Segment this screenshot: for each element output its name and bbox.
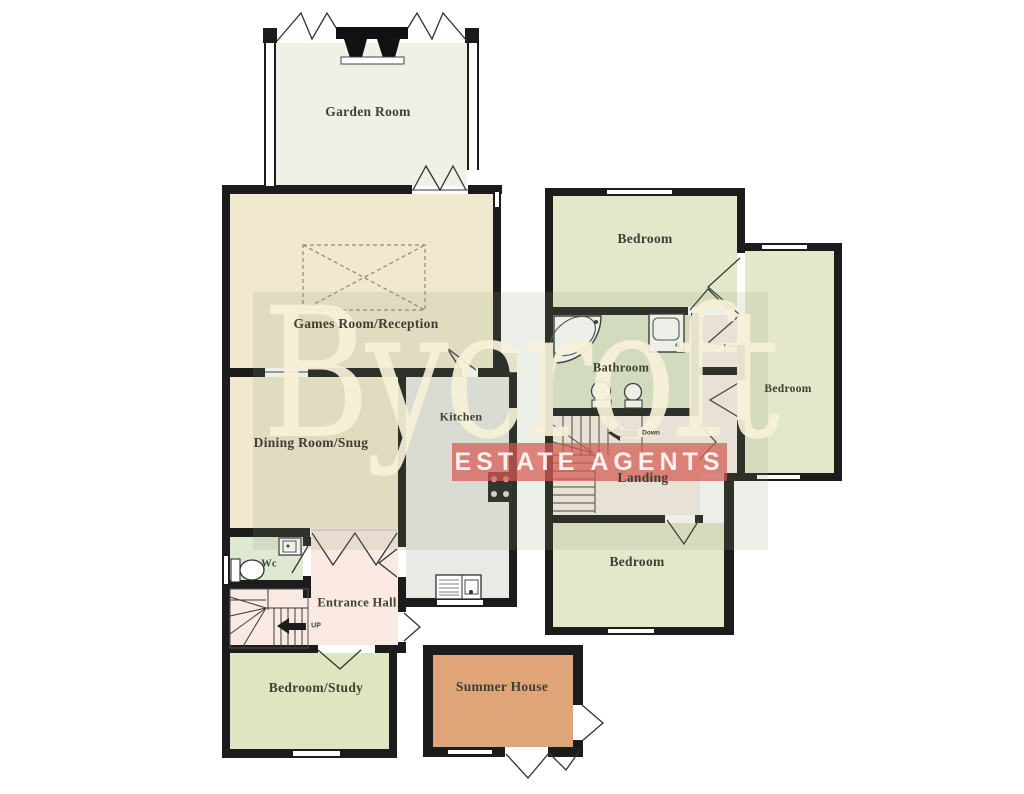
room-label-bedroom-bottom: Bedroom [609,554,664,570]
floorplan: Bycroft ESTATE AGENTS Garden Room Games … [0,0,1024,794]
room-label-summer-house: Summer House [456,679,548,695]
door-opening [573,705,583,740]
wall-segment [573,645,583,757]
room-summer-house [433,655,573,747]
window [608,627,654,635]
room-label-landing: Landing [618,470,669,486]
watermark-tagline: ESTATE AGENTS [454,448,724,477]
room-label-kitchen: Kitchen [440,410,483,425]
room-label-garden-room: Garden Room [325,104,410,120]
watermark-tagline-banner: ESTATE AGENTS [452,443,727,481]
window [222,556,230,584]
room-stair-area [230,589,311,645]
room-label-entrance-hall: Entrance Hall [317,596,396,611]
wall-segment [263,28,277,43]
window [448,748,492,756]
wall-segment [423,645,583,655]
window [762,243,807,251]
wall-segment [423,747,583,757]
wall-segment [834,243,842,481]
room-label-bathroom: Bathroom [593,361,649,376]
wall-segment [222,185,412,194]
wall-segment [375,645,406,653]
wall-segment [423,645,433,757]
room-label-games-room: Games Room/Reception [293,316,438,332]
room-label-bedroom-study: Bedroom/Study [269,680,363,696]
window [493,192,501,207]
room-label-wc: Wc [261,559,277,570]
door-opening [505,747,548,757]
stairs-down-label: Down [642,430,660,437]
window [437,598,483,607]
window [264,43,276,186]
wall-segment [222,645,318,653]
wall-segment [465,28,479,43]
room-bedroom-study [230,653,389,749]
room-label-dining-room: Dining Room/Snug [254,435,369,451]
window [467,43,479,170]
stairs-up-label: UP [311,623,321,630]
window [607,188,672,196]
wall-segment [222,185,230,758]
room-label-bedroom-right: Bedroom [764,383,811,395]
window [293,749,340,758]
room-label-bedroom-top: Bedroom [617,231,672,247]
wall-segment [222,580,311,589]
wall-segment [389,653,397,758]
